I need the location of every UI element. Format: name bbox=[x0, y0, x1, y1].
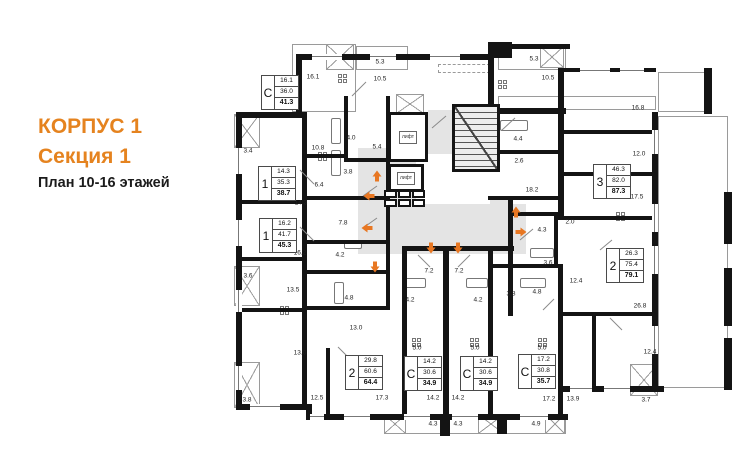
room-area-label: 13.5 bbox=[287, 287, 300, 294]
room-area-label: 5.0 bbox=[470, 345, 479, 352]
room-area-label: 4.2 bbox=[473, 297, 482, 304]
living-area: 36.0 bbox=[275, 87, 298, 98]
entrance-arrow-icon bbox=[452, 241, 464, 253]
room-area-label: 7.2 bbox=[424, 268, 433, 275]
room-area-label: 12.5 bbox=[311, 395, 324, 402]
room-area-label: 4.8 bbox=[344, 295, 353, 302]
room-area-label: 17.2 bbox=[543, 396, 556, 403]
room-area-label: 3.8 bbox=[506, 291, 515, 298]
room-area-label: 4.9 bbox=[531, 421, 540, 428]
room-area-label: 13.0 bbox=[294, 350, 307, 357]
room-area-label: 5.0 bbox=[537, 345, 546, 352]
living-area: 30.8 bbox=[532, 366, 555, 377]
living-area: 75.4 bbox=[620, 260, 643, 271]
total-area: 38.7 bbox=[272, 189, 295, 200]
apartment-areas: 14.230.634.9 bbox=[473, 357, 497, 390]
room-area-label: 17.5 bbox=[631, 194, 644, 201]
room-area-label: 18.2 bbox=[526, 187, 539, 194]
total-area: 34.9 bbox=[418, 379, 441, 390]
apartment-areas: 16.241.745.3 bbox=[272, 219, 296, 252]
room-area-label: 5.3 bbox=[529, 56, 538, 63]
room-area-label: 4.2 bbox=[405, 297, 414, 304]
living-area: 82.0 bbox=[607, 176, 630, 187]
apartment-type: 2 bbox=[607, 249, 619, 282]
total-area: 41.3 bbox=[275, 98, 298, 109]
entrance-arrow-icon bbox=[363, 189, 375, 201]
total-area: 64.4 bbox=[359, 378, 382, 389]
room-area-label: 7.8 bbox=[338, 220, 347, 227]
room-area-label: 4.8 bbox=[532, 289, 541, 296]
apartment-info-card: 346.382.087.3 bbox=[593, 164, 631, 199]
room-area: 26.3 bbox=[620, 249, 643, 260]
entrance-arrow-icon bbox=[369, 260, 381, 272]
apartment-areas: 17.230.835.7 bbox=[531, 355, 555, 388]
room-area: 17.2 bbox=[532, 355, 555, 366]
building-title: КОРПУС 1 bbox=[38, 112, 170, 142]
room-area-label: 4.3 bbox=[537, 227, 546, 234]
room-area-label: 5.3 bbox=[375, 59, 384, 66]
room-area-label: 12.4 bbox=[644, 349, 657, 356]
apartment-type: С bbox=[262, 76, 274, 109]
room-area-label: 4.4 bbox=[513, 136, 522, 143]
room-area-label: 5.4 bbox=[372, 144, 381, 151]
door-swing-lines bbox=[0, 0, 740, 472]
entrance-arrow-icon bbox=[510, 205, 522, 217]
entrance-arrow-icon bbox=[371, 169, 383, 181]
room-area-label: 4.3 bbox=[453, 421, 462, 428]
apartment-type: 3 bbox=[594, 165, 606, 198]
room-area: 29.8 bbox=[359, 356, 382, 367]
apartment-type: С bbox=[461, 357, 473, 390]
apartment-type: С bbox=[405, 357, 417, 390]
apartment-areas: 16.136.041.3 bbox=[274, 76, 298, 109]
room-area: 16.1 bbox=[275, 76, 298, 87]
living-area: 41.7 bbox=[273, 230, 296, 241]
entrance-arrow-icon bbox=[515, 225, 527, 237]
room-area-label: 13.9 bbox=[567, 396, 580, 403]
apartment-areas: 26.375.479.1 bbox=[619, 249, 643, 282]
room-area-label: 16.1 bbox=[307, 74, 320, 81]
section-title: Секция 1 bbox=[38, 142, 170, 172]
room-area-label: 4.3 bbox=[428, 421, 437, 428]
room-area-label: 26.8 bbox=[634, 303, 647, 310]
entrance-arrow-icon bbox=[425, 241, 437, 253]
total-area: 35.7 bbox=[532, 377, 555, 388]
room-area-label: 3.6 bbox=[543, 260, 552, 267]
total-area: 34.9 bbox=[474, 379, 497, 390]
room-area-label: 7.2 bbox=[454, 268, 463, 275]
room-area-label: 13.0 bbox=[350, 325, 363, 332]
plan-header: КОРПУС 1 Секция 1 План 10-16 этажей bbox=[38, 112, 170, 195]
apartment-type: С bbox=[519, 355, 531, 388]
room-area-label: 17.3 bbox=[376, 395, 389, 402]
room-area: 14.3 bbox=[272, 167, 295, 178]
apartment-type: 1 bbox=[259, 167, 271, 200]
apartment-areas: 14.230.634.9 bbox=[417, 357, 441, 390]
room-area-label: 6.4 bbox=[314, 182, 323, 189]
apartment-info-card: 226.375.479.1 bbox=[606, 248, 644, 283]
apartment-info-card: С14.230.634.9 bbox=[404, 356, 442, 391]
apartment-areas: 46.382.087.3 bbox=[606, 165, 630, 198]
room-area: 16.2 bbox=[273, 219, 296, 230]
room-area-label: 16.8 bbox=[632, 105, 645, 112]
living-area: 35.3 bbox=[272, 178, 295, 189]
apartment-type: 1 bbox=[260, 219, 272, 252]
living-area: 30.6 bbox=[418, 368, 441, 379]
total-area: 79.1 bbox=[620, 271, 643, 282]
room-area-label: 3.8 bbox=[343, 169, 352, 176]
room-area-label: 2.6 bbox=[514, 158, 523, 165]
total-area: 45.3 bbox=[273, 241, 296, 252]
room-area-label: 12.4 bbox=[570, 278, 583, 285]
living-area: 30.6 bbox=[474, 368, 497, 379]
room-area-label: 14.3 bbox=[295, 200, 308, 207]
apartment-info-card: 229.860.664.4 bbox=[345, 355, 383, 390]
room-area-label: 4.0 bbox=[346, 135, 355, 142]
room-area: 46.3 bbox=[607, 165, 630, 176]
room-area: 14.2 bbox=[474, 357, 497, 368]
apartment-info-card: С14.230.634.9 bbox=[460, 356, 498, 391]
room-area-label: 3.4 bbox=[243, 148, 252, 155]
apartment-info-card: С16.136.041.3 bbox=[261, 75, 299, 110]
apartment-info-card: 116.241.745.3 bbox=[259, 218, 297, 253]
apartment-areas: 29.860.664.4 bbox=[358, 356, 382, 389]
room-area-label: 5.0 bbox=[412, 345, 421, 352]
living-area: 60.6 bbox=[359, 367, 382, 378]
apartment-type: 2 bbox=[346, 356, 358, 389]
entrance-arrow-icon bbox=[361, 221, 373, 233]
room-area-label: 3.8 bbox=[242, 397, 251, 404]
apartment-info-card: С17.230.835.7 bbox=[518, 354, 556, 389]
room-area-label: 12.0 bbox=[633, 151, 646, 158]
room-area-label: 10.5 bbox=[542, 75, 555, 82]
room-area: 14.2 bbox=[418, 357, 441, 368]
floorplan-canvas: лифтлифт16.15.310.55.310.53.410.84.05.43… bbox=[0, 0, 740, 472]
room-area-label: 4.2 bbox=[335, 252, 344, 259]
apartment-areas: 14.335.338.7 bbox=[271, 167, 295, 200]
room-area-label: 10.5 bbox=[374, 76, 387, 83]
room-area-label: 2.0 bbox=[565, 219, 574, 226]
apartment-info-card: 114.335.338.7 bbox=[258, 166, 296, 201]
total-area: 87.3 bbox=[607, 187, 630, 198]
room-area-label: 14.2 bbox=[427, 395, 440, 402]
room-area-label: 3.7 bbox=[641, 397, 650, 404]
floors-subtitle: План 10-16 этажей bbox=[38, 173, 170, 195]
room-area-label: 10.8 bbox=[312, 145, 325, 152]
room-area-label: 3.6 bbox=[243, 273, 252, 280]
room-area-label: 14.2 bbox=[452, 395, 465, 402]
